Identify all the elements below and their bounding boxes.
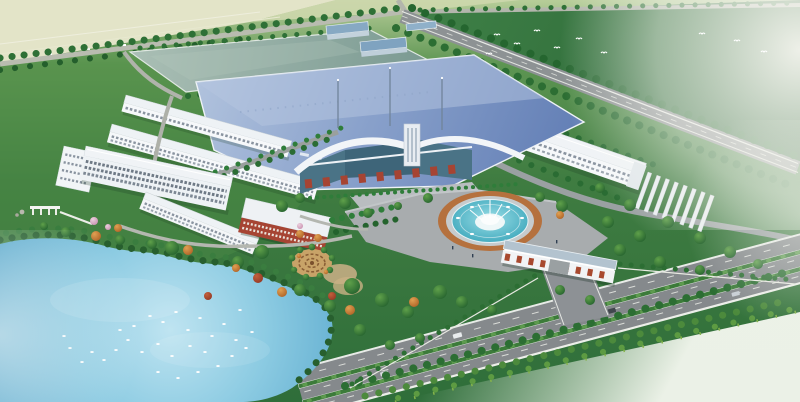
haze-right [660,120,800,320]
campus-rendering [0,0,800,402]
campus-rendering-stage: Aerial architectural rendering of an ind… [0,0,800,402]
haze-bottom-left [0,230,170,402]
